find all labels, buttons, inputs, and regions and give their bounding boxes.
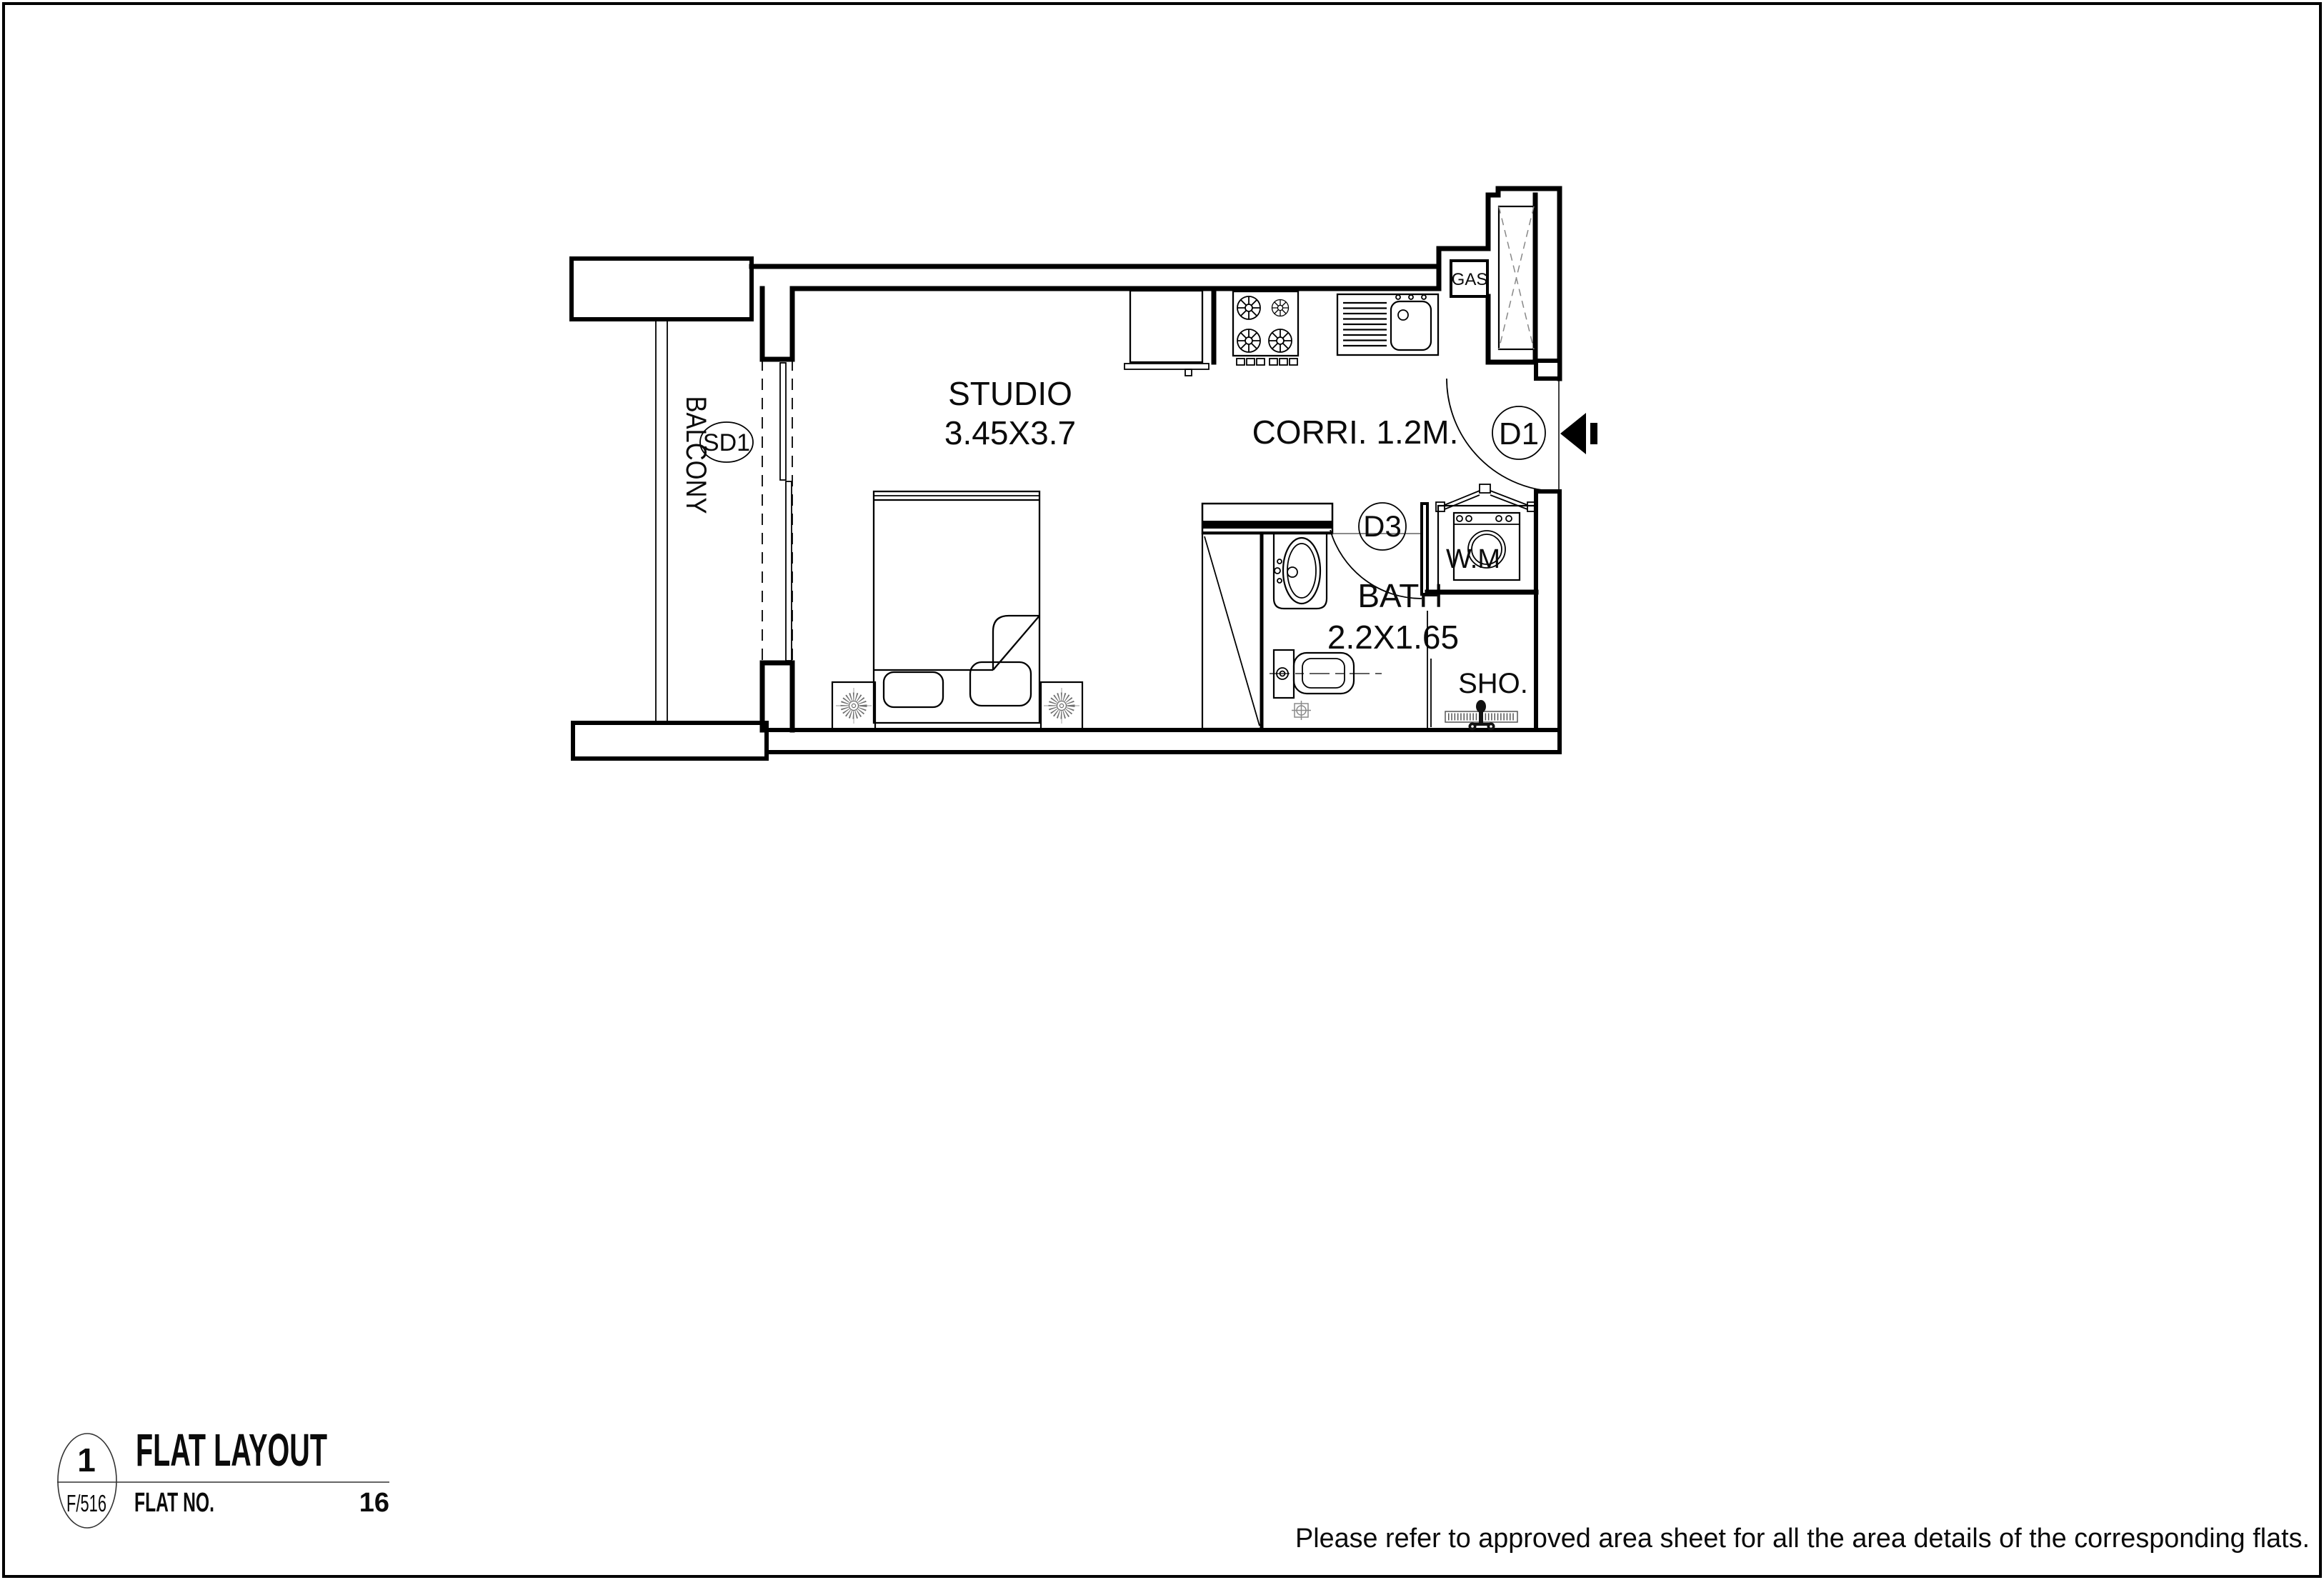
exterior-walls — [572, 189, 1560, 759]
balcony-railing — [656, 319, 667, 723]
studio-area: STUDIO 3.45X3.7 — [832, 375, 1082, 729]
gas-label: GAS — [1452, 270, 1488, 289]
bath-dims-label: 2.2X1.65 — [1327, 619, 1459, 656]
flat-no-label: FLAT NO. — [134, 1488, 214, 1518]
bath-door-tag: D3 — [1363, 509, 1402, 543]
studio-dims-label: 3.45X3.7 — [944, 414, 1076, 451]
bath-door-head-wall — [1202, 504, 1332, 534]
pillow — [970, 662, 1031, 706]
sheet-border — [4, 4, 2320, 1576]
lamp-symbol — [1044, 688, 1079, 724]
drawing-title: FLAT LAYOUT — [136, 1424, 327, 1476]
duct-shaft — [1202, 534, 1262, 729]
balcony-label: BALCONY — [680, 396, 712, 514]
sheet-ref: F/516 — [66, 1490, 106, 1516]
entry-arrow-icon — [1560, 413, 1597, 454]
pillow — [884, 672, 943, 707]
services-shaft — [1499, 206, 1534, 349]
gas-meter-box: GAS — [1451, 261, 1487, 296]
bottom-wall-left — [573, 723, 767, 759]
shaft-cross-icon — [1499, 206, 1534, 349]
corridor-area: D1 CORRI. 1.2M. — [1252, 379, 1597, 491]
corridor-label: CORRI. 1.2M. — [1252, 414, 1459, 451]
washbasin-symbol — [1274, 534, 1327, 609]
right-wall — [1536, 491, 1560, 752]
bed-symbol — [874, 491, 1039, 723]
bottom-wall — [767, 730, 1560, 752]
washing-machine-label: W.M — [1446, 544, 1500, 574]
drawing-sheet: SD1 BALCONY GAS — [0, 0, 2324, 1580]
toilet-symbol — [1270, 650, 1382, 698]
entry-door-tag: D1 — [1499, 416, 1539, 451]
studio-label: STUDIO — [948, 375, 1072, 412]
footnote: Please refer to approved area sheet for … — [1295, 1524, 2310, 1554]
floor-plan-canvas: SD1 BALCONY GAS — [0, 0, 2324, 1580]
flat-no-value: 16 — [359, 1488, 389, 1518]
sliding-door-symbol — [762, 359, 792, 663]
kitchen-sink-symbol — [1337, 294, 1438, 355]
washing-machine-niche: W.M — [1422, 484, 1536, 594]
balcony-pier-wall — [572, 259, 752, 319]
floor-drain-symbol — [1292, 701, 1311, 720]
shower-label: SHO. — [1458, 668, 1528, 699]
detail-number: 1 — [77, 1441, 96, 1479]
lamp-symbol — [836, 688, 872, 724]
stove-symbol — [1233, 291, 1298, 365]
title-block: 1 F/516 FLAT LAYOUT FLAT NO. 16 — [57, 1424, 389, 1528]
kitchen-area — [1124, 291, 1438, 376]
drainboard-lines — [1343, 303, 1387, 346]
fridge-symbol — [1124, 291, 1209, 376]
stove-knobs — [1237, 359, 1297, 365]
bath-label: BATH — [1357, 577, 1442, 614]
bifold-door-symbol — [1436, 484, 1536, 511]
